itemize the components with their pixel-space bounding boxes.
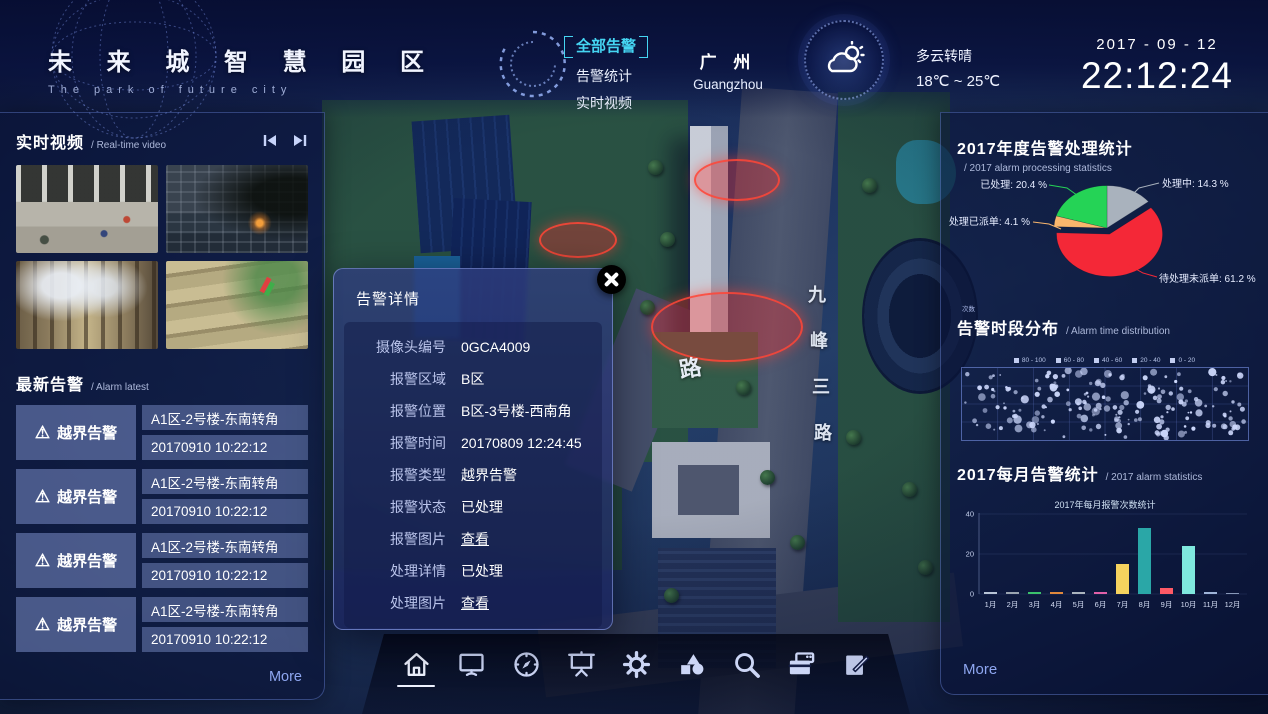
modal-field: 处理图片查看 (354, 587, 592, 619)
road-name-label: 峰 (810, 327, 828, 353)
city-name-en: Guangzhou (686, 77, 770, 92)
svg-text:11月: 11月 (1203, 600, 1218, 609)
svg-text:10月: 10月 (1181, 600, 1197, 609)
weather-condition: 多云转晴 (916, 46, 1000, 66)
alarm-detail-modal: 告警详情 摄像头编号0GCA4009报警区域B区报警位置B区-3号楼-西南角报警… (333, 268, 613, 630)
svg-text:2月: 2月 (1007, 600, 1019, 609)
road-name-label: 三 (812, 373, 830, 399)
field-value: 已处理 (461, 561, 503, 581)
pie-section-title: 2017年度告警处理统计 (957, 135, 1133, 159)
field-label: 处理详情 (354, 561, 446, 581)
modal-field: 报警位置B区-3号楼-西南角 (354, 395, 592, 427)
cloud-sun-icon (822, 41, 866, 79)
weather-summary: 多云转晴 18℃ ~ 25℃ (916, 46, 1000, 90)
video-thumbnail-grid (16, 165, 308, 349)
toolbar-shapes-button[interactable] (674, 649, 708, 714)
screen-icon (566, 649, 597, 680)
alarm-section-title: 最新告警 (16, 371, 84, 395)
svg-text:9月: 9月 (1161, 600, 1173, 609)
modal-field: 报警状态已处理 (354, 491, 592, 523)
svg-text:5月: 5月 (1073, 600, 1085, 609)
alarm-type-badge: ⚠越界告警 (16, 597, 136, 652)
alarm-time: 20170910 10:22:12 (142, 499, 308, 524)
monitor-icon (456, 649, 487, 680)
scatter-legend-item: 0 - 20 (1170, 357, 1195, 364)
modal-field: 报警时间20170809 12:24:45 (354, 427, 592, 459)
alarm-list-item[interactable]: ⚠越界告警A1区-2号楼-东南转角20170910 10:22:12 (16, 597, 308, 652)
field-value: 20170809 12:24:45 (461, 435, 582, 451)
weather-temp-range: 18℃ ~ 25℃ (916, 72, 1000, 90)
legend-swatch (1056, 358, 1061, 363)
svg-text:待处理已派单: 4.1 %: 待处理已派单: 4.1 % (949, 215, 1030, 228)
weather-icon-badge (804, 20, 884, 100)
top-header-bar: 未 来 城 智 慧 园 区 The park of future city 全部… (0, 0, 1268, 118)
alarm-time: 20170910 10:22:12 (142, 627, 308, 652)
field-value-link[interactable]: 查看 (461, 529, 489, 549)
svg-text:待处理未派单: 61.2 %: 待处理未派单: 61.2 % (1159, 272, 1256, 285)
modal-close-button[interactable] (597, 265, 626, 294)
video-thumbnail-street[interactable] (16, 165, 158, 253)
right-stats-panel: 2017年度告警处理统计 / 2017 alarm processing sta… (940, 112, 1268, 695)
svg-text:7月: 7月 (1117, 600, 1129, 609)
scatter-axis-label: 次数 (962, 303, 975, 313)
svg-text:2017年每月报警次数统计: 2017年每月报警次数统计 (1054, 499, 1155, 510)
city-name-cn: 广 州 (686, 48, 770, 73)
alarm-time: 20170910 10:22:12 (142, 563, 308, 588)
alarm-type-badge: ⚠越界告警 (16, 533, 136, 588)
bar-section-subtitle: / 2017 alarm statistics (1106, 472, 1203, 483)
toolbar-search-button[interactable] (729, 649, 763, 714)
road-name-label: 九 (808, 281, 826, 307)
modal-field: 摄像头编号0GCA4009 (354, 331, 592, 363)
search-icon (731, 649, 762, 680)
edit-icon (841, 649, 872, 680)
shapes-icon (676, 649, 707, 680)
toolbar-compass-button[interactable] (509, 649, 543, 714)
warning-icon: ⚠ (35, 616, 50, 633)
legend-swatch (1014, 358, 1019, 363)
legend-swatch (1094, 358, 1099, 363)
toolbar-home-button[interactable] (399, 649, 433, 714)
field-value: 已处理 (461, 497, 503, 517)
field-label: 报警图片 (354, 529, 446, 549)
alarm-type-badge: ⚠越界告警 (16, 469, 136, 524)
field-label: 报警时间 (354, 433, 446, 453)
app-logo: 未 来 城 智 慧 园 区 The park of future city (48, 42, 438, 96)
toolbar-screen-button[interactable] (564, 649, 598, 714)
nav-item-link[interactable]: 实时视频 (576, 94, 648, 112)
svg-text:0: 0 (970, 590, 974, 599)
modal-title: 告警详情 (334, 269, 612, 320)
monthly-alarm-bar-chart: 2017年每月报警次数统计020401月2月3月4月5月6月7月8月9月10月1… (955, 497, 1254, 624)
right-panel-more-link[interactable]: More (963, 661, 997, 678)
modal-field: 报警区域B区 (354, 363, 592, 395)
toolbar-monitor-button[interactable] (454, 649, 488, 714)
modal-field: 报警类型越界告警 (354, 459, 592, 491)
alarm-location: A1区-2号楼-东南转角 (142, 469, 308, 494)
cards-icon (786, 649, 817, 680)
scatter-legend-item: 60 - 80 (1056, 357, 1084, 364)
bar-section-title: 2017每月告警统计 (957, 461, 1099, 485)
svg-text:8月: 8月 (1139, 600, 1151, 609)
app-title: 未 来 城 智 慧 园 区 (48, 42, 438, 77)
home-icon (401, 649, 432, 680)
video-thumbnail-stairs[interactable] (166, 261, 308, 349)
field-label: 报警类型 (354, 465, 446, 485)
smart-park-dashboard: 九峰三路 路 未 来 城 智 慧 园 区 The park of future … (0, 0, 1268, 714)
alarm-list-item[interactable]: ⚠越界告警A1区-2号楼-东南转角20170910 10:22:12 (16, 405, 308, 460)
city-selector[interactable]: 广 州 Guangzhou (686, 48, 770, 92)
alarm-list-item[interactable]: ⚠越界告警A1区-2号楼-东南转角20170910 10:22:12 (16, 533, 308, 588)
latest-alarm-list: ⚠越界告警A1区-2号楼-东南转角20170910 10:22:12⚠越界告警A… (0, 405, 324, 652)
alarm-section-subtitle: / Alarm latest (91, 382, 149, 393)
alarm-location: A1区-2号楼-东南转角 (142, 533, 308, 558)
current-time: 22:12:24 (1062, 55, 1252, 97)
legend-swatch (1132, 358, 1137, 363)
left-sidebar-panel: 实时视频 / Real-time video 最新告警 / Alarm late… (0, 112, 325, 700)
warning-icon: ⚠ (35, 488, 50, 505)
scatter-legend: 80 - 10060 - 8040 - 6020 - 400 - 20 (941, 357, 1268, 364)
current-date: 2017 - 09 - 12 (1062, 36, 1252, 53)
modal-field: 处理详情已处理 (354, 555, 592, 587)
scatter-legend-item: 20 - 40 (1132, 357, 1160, 364)
nav-item-active[interactable]: 全部告警 (564, 36, 648, 58)
svg-text:20: 20 (966, 550, 974, 559)
scatter-section-subtitle: / Alarm time distribution (1066, 326, 1170, 337)
field-label: 摄像头编号 (354, 337, 446, 357)
alarm-type-badge: ⚠越界告警 (16, 405, 136, 460)
video-prev-button[interactable] (262, 133, 278, 148)
svg-text:处理中: 14.3 %: 处理中: 14.3 % (1162, 177, 1229, 190)
alarm-time: 20170910 10:22:12 (142, 435, 308, 460)
field-value: B区 (461, 369, 484, 389)
map-alarm-marker[interactable] (539, 222, 617, 258)
alarm-time-scatter-chart (961, 367, 1249, 441)
field-label: 报警状态 (354, 497, 446, 517)
field-value: B区-3号楼-西南角 (461, 401, 571, 421)
active-underline (397, 685, 435, 687)
bottom-toolbar-dock (362, 634, 910, 714)
map-alarm-marker[interactable] (651, 292, 803, 362)
header-nav-menu: 全部告警告警统计实时视频 (576, 36, 648, 112)
modal-field-list: 摄像头编号0GCA4009报警区域B区报警位置B区-3号楼-西南角报警时间201… (344, 322, 602, 628)
datetime-display: 2017 - 09 - 12 22:12:24 (1062, 36, 1252, 97)
svg-text:12月: 12月 (1225, 600, 1241, 609)
field-label: 处理图片 (354, 593, 446, 613)
svg-text:40: 40 (966, 510, 974, 519)
toolbar-gear-button[interactable] (619, 649, 653, 714)
warning-icon: ⚠ (35, 424, 50, 441)
toolbar-edit-button[interactable] (839, 649, 873, 714)
svg-text:6月: 6月 (1095, 600, 1107, 609)
legend-swatch (1170, 358, 1175, 363)
video-thumbnail-atrium[interactable] (16, 261, 158, 349)
field-value: 0GCA4009 (461, 339, 530, 355)
field-value-link[interactable]: 查看 (461, 593, 489, 613)
nav-item-link[interactable]: 告警统计 (576, 67, 648, 85)
alarm-location: A1区-2号楼-东南转角 (142, 597, 308, 622)
gear-icon (621, 649, 652, 680)
video-next-button[interactable] (292, 133, 308, 148)
alarm-processing-pie-chart: 处理中: 14.3 %待处理未派单: 61.2 %待处理已派单: 4.1 %已处… (949, 172, 1260, 311)
svg-text:3月: 3月 (1029, 600, 1041, 609)
alarm-list-item[interactable]: ⚠越界告警A1区-2号楼-东南转角20170910 10:22:12 (16, 469, 308, 524)
warning-icon: ⚠ (35, 552, 50, 569)
field-label: 报警区域 (354, 369, 446, 389)
road-name-label: 路 (814, 419, 832, 445)
svg-text:已处理: 20.4 %: 已处理: 20.4 % (980, 179, 1047, 191)
modal-field: 报警图片查看 (354, 523, 592, 555)
alarm-location: A1区-2号楼-东南转角 (142, 405, 308, 430)
toolbar-cards-button[interactable] (784, 649, 818, 714)
svg-text:1月: 1月 (985, 600, 997, 609)
close-icon (597, 265, 626, 294)
field-value: 越界告警 (461, 465, 517, 485)
field-label: 报警位置 (354, 401, 446, 421)
left-panel-more-link[interactable]: More (269, 669, 302, 685)
video-thumbnail-building-dusk[interactable] (166, 165, 308, 253)
scatter-legend-item: 80 - 100 (1014, 357, 1046, 364)
map-alarm-marker[interactable] (694, 159, 780, 201)
svg-text:4月: 4月 (1051, 600, 1063, 609)
app-subtitle: The park of future city (48, 84, 438, 96)
compass-icon (511, 649, 542, 680)
scatter-section-title: 告警时段分布 (957, 315, 1059, 339)
scatter-legend-item: 40 - 60 (1094, 357, 1122, 364)
swirl-ring-decoration (495, 26, 571, 102)
